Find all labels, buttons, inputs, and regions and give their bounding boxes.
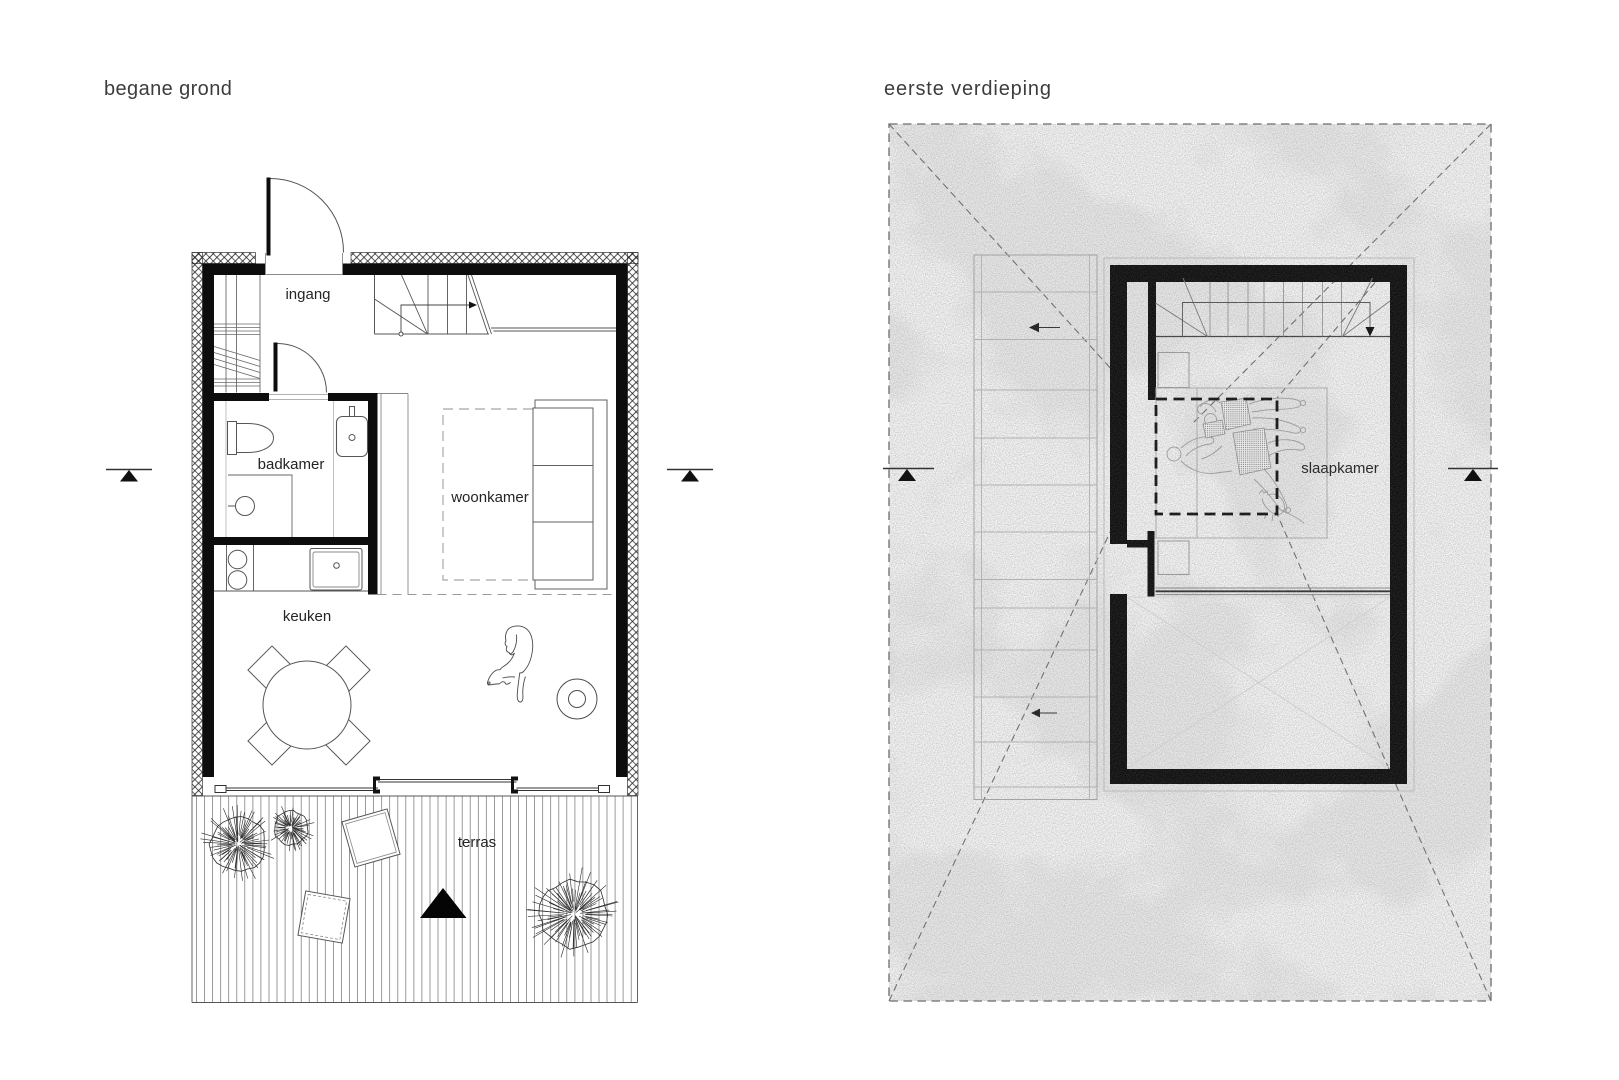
svg-text:begane grond: begane grond [104,78,232,100]
svg-text:badkamer: badkamer [258,456,325,473]
svg-text:terras: terras [458,834,496,851]
svg-text:ingang: ingang [285,286,330,303]
svg-text:woonkamer: woonkamer [450,489,529,506]
svg-text:eerste verdieping: eerste verdieping [884,78,1052,100]
svg-text:keuken: keuken [283,608,331,625]
